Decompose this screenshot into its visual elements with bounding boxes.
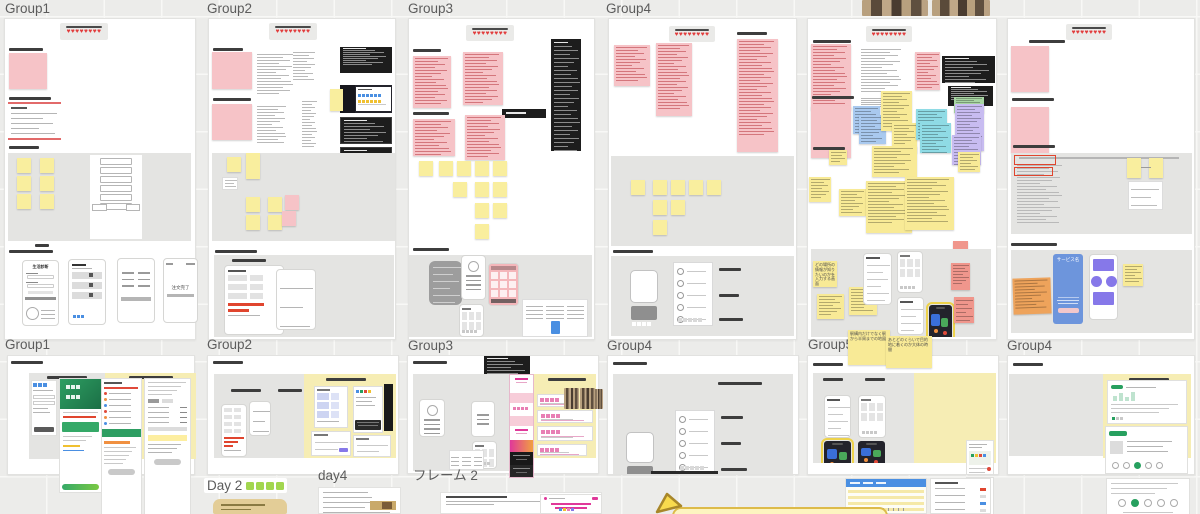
highlight-box[interactable] [1014, 167, 1053, 176]
detail [956, 300, 973, 301]
photo-thumbnail[interactable] [564, 388, 579, 409]
app-screenshot[interactable] [537, 444, 587, 456]
code-block[interactable] [502, 109, 546, 118]
detail [874, 431, 877, 434]
sticky-note[interactable] [653, 220, 667, 235]
detail [357, 445, 388, 446]
text-caption[interactable] [613, 362, 647, 365]
hearts-badge[interactable]: ♥♥♥♥♥♥♥♥ [1066, 24, 1112, 40]
detail [100, 158, 131, 165]
hearts-badge[interactable]: ♥♥♥♥♥♥♥♥ [466, 25, 514, 41]
section-panel[interactable] [611, 156, 794, 246]
frame[interactable]: ♥♥♥♥♥♥♥♥ [608, 18, 797, 340]
photo-thumbnail[interactable] [932, 0, 990, 16]
detail [739, 68, 772, 69]
text-caption[interactable] [213, 361, 243, 364]
section-panel[interactable] [409, 255, 592, 337]
sticky-note[interactable]: 駅構内だけでなく駅から半周までの地図 [848, 330, 890, 365]
frame[interactable] [207, 355, 399, 475]
phone-mockup[interactable] [471, 401, 495, 437]
app-screenshot[interactable] [930, 478, 991, 514]
frame[interactable] [7, 355, 195, 475]
sticky-note[interactable] [40, 194, 54, 209]
detail [956, 304, 968, 305]
detail [945, 79, 986, 80]
text-caption[interactable] [548, 378, 586, 381]
text-caption[interactable] [413, 248, 449, 251]
sticky-note[interactable] [839, 189, 866, 216]
section-panel[interactable]: どの場所の情報が知りたいのかを入力する画面 [811, 249, 991, 337]
table-note[interactable] [8, 102, 61, 140]
device-mockup[interactable] [623, 430, 657, 474]
hearts-badge[interactable]: ♥♥♥♥♥♥♥♥ [866, 26, 912, 42]
document-frame[interactable] [318, 487, 401, 514]
code-block[interactable] [340, 47, 392, 73]
text-caption[interactable] [719, 268, 741, 271]
text-caption[interactable] [823, 378, 843, 381]
phone-mockup[interactable] [459, 304, 484, 337]
phone-mockup[interactable]: 注文完了 [163, 258, 198, 323]
detail [356, 87, 391, 112]
sticky-note[interactable] [17, 158, 31, 173]
detail [344, 141, 383, 142]
photo-thumbnail[interactable] [862, 0, 928, 16]
frame-label[interactable]: Group4 [607, 338, 652, 353]
sticky-note[interactable] [737, 39, 778, 152]
phone-mockup[interactable]: 生活診断 [22, 260, 59, 326]
sticky-note[interactable] [457, 161, 471, 176]
sticky-note[interactable] [1123, 264, 1143, 286]
detail [476, 322, 481, 330]
frame-label-day2[interactable]: Day 2 [204, 478, 287, 493]
detail [1015, 304, 1036, 306]
sticky-note[interactable] [40, 176, 54, 191]
sticky-note[interactable] [671, 200, 685, 215]
detail [658, 63, 674, 64]
app-screenshot[interactable] [1107, 380, 1187, 424]
sticky-note[interactable] [829, 150, 847, 165]
section-panel[interactable] [813, 373, 914, 463]
text-caption[interactable] [413, 49, 441, 52]
detail [567, 508, 570, 511]
detail [956, 102, 980, 103]
detail [689, 455, 708, 457]
sticky-note[interactable] [689, 180, 703, 195]
detail [1015, 301, 1044, 303]
section-panel[interactable] [8, 153, 191, 241]
app-screenshot[interactable] [101, 378, 142, 514]
sticky-note[interactable] [1011, 46, 1049, 92]
hearts-badge[interactable]: ♥♥♥♥♥♥♥♥ [269, 23, 317, 40]
detail [861, 399, 871, 401]
code-block[interactable] [551, 39, 581, 151]
app-screenshot[interactable] [353, 386, 383, 433]
text-block[interactable] [293, 50, 319, 80]
phone-mockup[interactable] [117, 258, 155, 323]
app-screenshot[interactable] [144, 378, 191, 514]
sticky-note[interactable] [614, 45, 650, 86]
detail [1131, 205, 1157, 206]
sticky-note[interactable] [817, 294, 844, 319]
sticky-note[interactable] [707, 180, 721, 195]
text-block[interactable] [257, 104, 291, 144]
text-caption[interactable] [232, 259, 266, 262]
photo-thumbnail[interactable] [594, 389, 603, 409]
app-screenshot[interactable] [540, 494, 602, 514]
detail [554, 110, 577, 111]
sticky-note[interactable] [954, 297, 974, 323]
sticky-note[interactable] [268, 215, 282, 230]
sticky-note[interactable] [413, 56, 451, 108]
phone-mockup[interactable] [249, 401, 271, 436]
text-caption[interactable] [215, 250, 257, 253]
sticky-note[interactable]: あとどのくらいで目的地に着くのか大体の時間 [886, 336, 932, 368]
sticky-note[interactable] [1012, 277, 1051, 314]
detail [500, 290, 507, 297]
sticky-note[interactable] [17, 194, 31, 209]
text-block[interactable] [861, 47, 908, 93]
frame-label[interactable]: フレーム 2 [413, 464, 478, 484]
text-caption[interactable] [1013, 363, 1043, 366]
hearts-badge[interactable]: ♥♥♥♥♥♥♥♥ [669, 26, 715, 42]
phone-mockup[interactable] [1089, 254, 1118, 320]
note-panel[interactable] [1128, 181, 1163, 210]
phone-mockup[interactable] [221, 404, 247, 457]
detail [225, 186, 236, 187]
text-caption[interactable] [1013, 145, 1055, 148]
frame-label[interactable]: Group3 [408, 1, 453, 16]
app-screenshot[interactable] [311, 431, 351, 456]
app-screenshot[interactable] [1106, 478, 1190, 514]
photo-thumbnail[interactable] [580, 388, 595, 409]
detail [953, 274, 963, 275]
detail [100, 194, 131, 201]
sticky-note[interactable] [268, 197, 282, 212]
app-screenshot[interactable] [522, 299, 588, 337]
text-caption[interactable] [1012, 98, 1054, 101]
text-caption[interactable] [231, 389, 261, 392]
sticky-note[interactable] [631, 180, 645, 195]
detail [1125, 397, 1129, 401]
frame-label[interactable]: Group2 [207, 337, 252, 352]
detail [841, 194, 857, 195]
sticky-note[interactable] [17, 176, 31, 191]
text-caption[interactable] [1029, 40, 1065, 43]
text-caption[interactable] [9, 97, 51, 100]
text-caption[interactable] [812, 96, 854, 99]
frame-label[interactable]: Group3 [408, 338, 453, 353]
sticky-note[interactable] [282, 211, 296, 226]
text-caption[interactable] [9, 250, 53, 253]
frame-label[interactable]: Group5 [808, 337, 853, 352]
text-caption[interactable] [865, 378, 885, 381]
detail [228, 275, 247, 281]
device-mockup[interactable] [627, 268, 661, 328]
text-caption[interactable] [11, 361, 43, 364]
detail [467, 141, 489, 142]
detail [969, 444, 987, 445]
sticky-note[interactable] [920, 123, 951, 153]
section-panel[interactable] [212, 153, 395, 241]
map-phone-screenshot[interactable] [929, 305, 952, 337]
detail [224, 429, 246, 433]
detail [689, 419, 708, 421]
section-panel[interactable] [1009, 374, 1103, 456]
text-caption[interactable] [413, 112, 449, 115]
phone-mockup[interactable] [276, 269, 316, 330]
text-caption[interactable] [9, 146, 39, 149]
text-caption[interactable] [737, 32, 767, 35]
radio-list-mockup[interactable] [673, 262, 713, 326]
frame[interactable]: ♥♥♥♥♥♥♥♥サービス名 [1007, 18, 1195, 340]
detail [491, 281, 498, 288]
detail [11, 107, 27, 109]
section-panel[interactable] [534, 374, 596, 458]
sticky-note[interactable] [419, 161, 433, 176]
sticky-note[interactable] [951, 263, 970, 290]
detail [1057, 300, 1080, 301]
flowchart-panel[interactable] [90, 155, 142, 239]
sticky-note[interactable] [246, 197, 260, 212]
sticky-note[interactable] [1149, 158, 1163, 178]
phone-mockup[interactable] [897, 251, 923, 293]
detail [980, 502, 986, 505]
sticky-note[interactable] [493, 182, 507, 197]
detail [900, 255, 910, 257]
detail [689, 431, 708, 433]
detail [827, 449, 837, 459]
detail [100, 167, 131, 174]
app-screenshot[interactable] [59, 378, 102, 493]
detail [104, 387, 138, 390]
app-screenshot[interactable] [537, 426, 593, 441]
sticky-note[interactable] [958, 152, 980, 172]
frame-label[interactable]: day4 [318, 468, 347, 483]
frame-label[interactable]: Group4 [1007, 338, 1052, 353]
sticky-note[interactable] [653, 200, 667, 215]
map-phone-screenshot[interactable] [858, 441, 885, 463]
text-caption[interactable] [1011, 243, 1057, 246]
phone-mockup[interactable] [419, 399, 445, 437]
detail [317, 411, 329, 418]
text-caption[interactable] [813, 40, 851, 43]
highlight-box[interactable] [1014, 155, 1056, 165]
detail [957, 127, 979, 128]
detail [831, 155, 842, 156]
detail [370, 100, 373, 103]
sticky-note[interactable] [413, 119, 455, 156]
phone-mockup[interactable] [824, 395, 851, 438]
phone-mockup[interactable] [224, 265, 284, 335]
detail [415, 82, 436, 83]
phone-mockup[interactable] [429, 261, 462, 305]
detail [357, 451, 379, 452]
frame[interactable] [607, 355, 799, 475]
code-block[interactable] [340, 117, 392, 144]
sticky-note[interactable] [246, 153, 260, 179]
app-screenshot[interactable] [314, 386, 348, 428]
sticky-note[interactable] [285, 195, 299, 210]
detail [861, 52, 890, 53]
detail [554, 54, 570, 55]
app-screenshot-strip[interactable] [509, 374, 534, 478]
detail [907, 179, 949, 180]
sticky-note[interactable] [453, 182, 467, 197]
detail [509, 290, 516, 297]
text-caption[interactable] [326, 378, 366, 381]
detail [344, 129, 370, 130]
text-caption[interactable] [413, 361, 447, 364]
sticky-note[interactable] [463, 52, 503, 105]
detail [476, 312, 481, 320]
sticky-note[interactable] [212, 104, 252, 140]
text-caption[interactable] [721, 468, 747, 471]
detail [554, 102, 574, 103]
sticky-note[interactable] [809, 177, 831, 202]
frame[interactable] [407, 355, 599, 474]
app-screenshot[interactable] [1105, 426, 1188, 474]
detail [876, 482, 886, 484]
sticky-note[interactable]: どの場所の情報が知りたいのかを入力する画面 [813, 261, 837, 287]
detail [679, 440, 714, 447]
text-caption[interactable] [35, 244, 49, 247]
app-screenshot[interactable] [31, 380, 57, 436]
text-caption[interactable] [721, 416, 743, 419]
app-screenshot[interactable] [966, 440, 994, 475]
phone-mockup[interactable] [68, 259, 106, 325]
hearts-badge[interactable]: ♥♥♥♥♥♥♥♥ [60, 23, 108, 40]
detail [1111, 404, 1178, 405]
detail [526, 314, 544, 315]
calendar-screenshot[interactable] [340, 85, 392, 113]
radio-list-mockup[interactable] [675, 410, 715, 474]
sticky-note[interactable] [475, 203, 489, 218]
sticky-text: どの場所の情報が知りたいのかを入力する画面 [813, 261, 837, 287]
detail [679, 416, 714, 423]
frame-label[interactable]: Group4 [606, 1, 651, 16]
map-phone-screenshot[interactable] [824, 441, 851, 463]
sticky-note[interactable] [40, 158, 54, 173]
sticky-note[interactable] [212, 52, 252, 89]
text-caption[interactable] [278, 389, 302, 392]
section-panel[interactable] [613, 374, 793, 474]
text-caption[interactable] [213, 98, 251, 101]
detail [1017, 192, 1059, 193]
frame-label[interactable]: Group1 [5, 1, 50, 16]
app-screenshot[interactable] [537, 410, 593, 423]
sticky-note[interactable] [915, 52, 940, 90]
sticky-note[interactable] [1127, 158, 1141, 178]
section-panel[interactable] [1011, 153, 1192, 234]
detail [960, 163, 971, 164]
text-caption[interactable] [613, 250, 653, 253]
frame[interactable]: ♥♥♥♥♥♥♥♥ [408, 18, 595, 340]
detail [679, 452, 714, 459]
phone-mockup[interactable] [863, 253, 892, 305]
phone-mockup[interactable] [858, 395, 886, 438]
section-panel[interactable]: サービス名 [1011, 250, 1192, 333]
sticky-note[interactable] [872, 146, 917, 177]
detail [148, 407, 188, 408]
detail [33, 383, 37, 387]
sticky-note[interactable] [330, 89, 343, 111]
sticky-note[interactable] [227, 157, 241, 172]
text-caption[interactable] [719, 294, 739, 297]
detail [941, 318, 948, 327]
frame[interactable]: ♥♥♥♥♥♥♥♥ [208, 18, 396, 340]
detail [323, 497, 372, 499]
code-block[interactable] [942, 56, 995, 83]
section-panel[interactable] [611, 256, 794, 336]
section-panel[interactable] [304, 374, 396, 458]
app-screenshot[interactable] [353, 435, 391, 457]
text-block[interactable] [302, 99, 319, 147]
phone-mockup[interactable] [897, 297, 924, 335]
sticky-note[interactable] [653, 180, 667, 195]
sticky-note[interactable] [905, 177, 954, 230]
sticky-note[interactable] [671, 180, 685, 195]
sticky-note[interactable] [672, 507, 888, 514]
frame[interactable] [1007, 355, 1195, 475]
sticky-note[interactable] [493, 203, 507, 218]
sticky-note[interactable] [656, 43, 692, 116]
detail [360, 390, 363, 393]
sticky-note[interactable] [493, 161, 507, 176]
detail [1156, 462, 1163, 469]
phone-mockup[interactable] [461, 255, 486, 300]
text-caption[interactable] [721, 442, 741, 445]
frame-label[interactable]: Group1 [5, 337, 50, 352]
text-caption[interactable] [718, 382, 762, 385]
detail [917, 63, 930, 64]
section-panel[interactable] [214, 255, 394, 337]
sticky-note[interactable] [811, 44, 851, 110]
detail [469, 312, 474, 320]
detail [647, 322, 651, 326]
section-panel[interactable] [214, 374, 304, 458]
detail [951, 95, 988, 96]
detail [679, 440, 686, 447]
section-panel[interactable] [413, 374, 511, 471]
detail [331, 393, 339, 400]
sticky-note[interactable] [465, 115, 505, 160]
phone-mockup[interactable]: サービス名 [1053, 254, 1083, 324]
frame[interactable]: ♥♥♥♥♥♥♥♥どの場所の情報が知りたいのかを入力する画面 [807, 18, 997, 340]
detail [554, 78, 578, 79]
sticky-note[interactable] [246, 215, 260, 230]
detail [678, 318, 682, 322]
detail [868, 186, 896, 187]
sticky-note[interactable] [439, 161, 453, 176]
frame[interactable]: ♥♥♥♥♥♥♥♥生活診断注文完了 [4, 18, 196, 340]
sticky-note[interactable] [213, 499, 287, 514]
sticky-note[interactable] [475, 182, 489, 197]
text-caption[interactable] [813, 363, 843, 366]
text-caption[interactable] [213, 48, 243, 51]
frame-label[interactable]: Group2 [207, 1, 252, 16]
phone-mockup[interactable] [488, 263, 519, 306]
sticky-note[interactable] [9, 53, 47, 89]
note-panel[interactable] [222, 177, 238, 190]
sticky-note[interactable] [475, 161, 489, 176]
text-caption[interactable] [9, 48, 43, 51]
frame[interactable] [807, 355, 999, 475]
text-caption[interactable] [719, 318, 743, 321]
detail [28, 291, 53, 294]
sticky-note[interactable] [475, 224, 489, 239]
detail [415, 67, 435, 68]
whiteboard-canvas[interactable]: Group1 Group2 Group3 Group4 Group1 Group… [0, 0, 1200, 514]
